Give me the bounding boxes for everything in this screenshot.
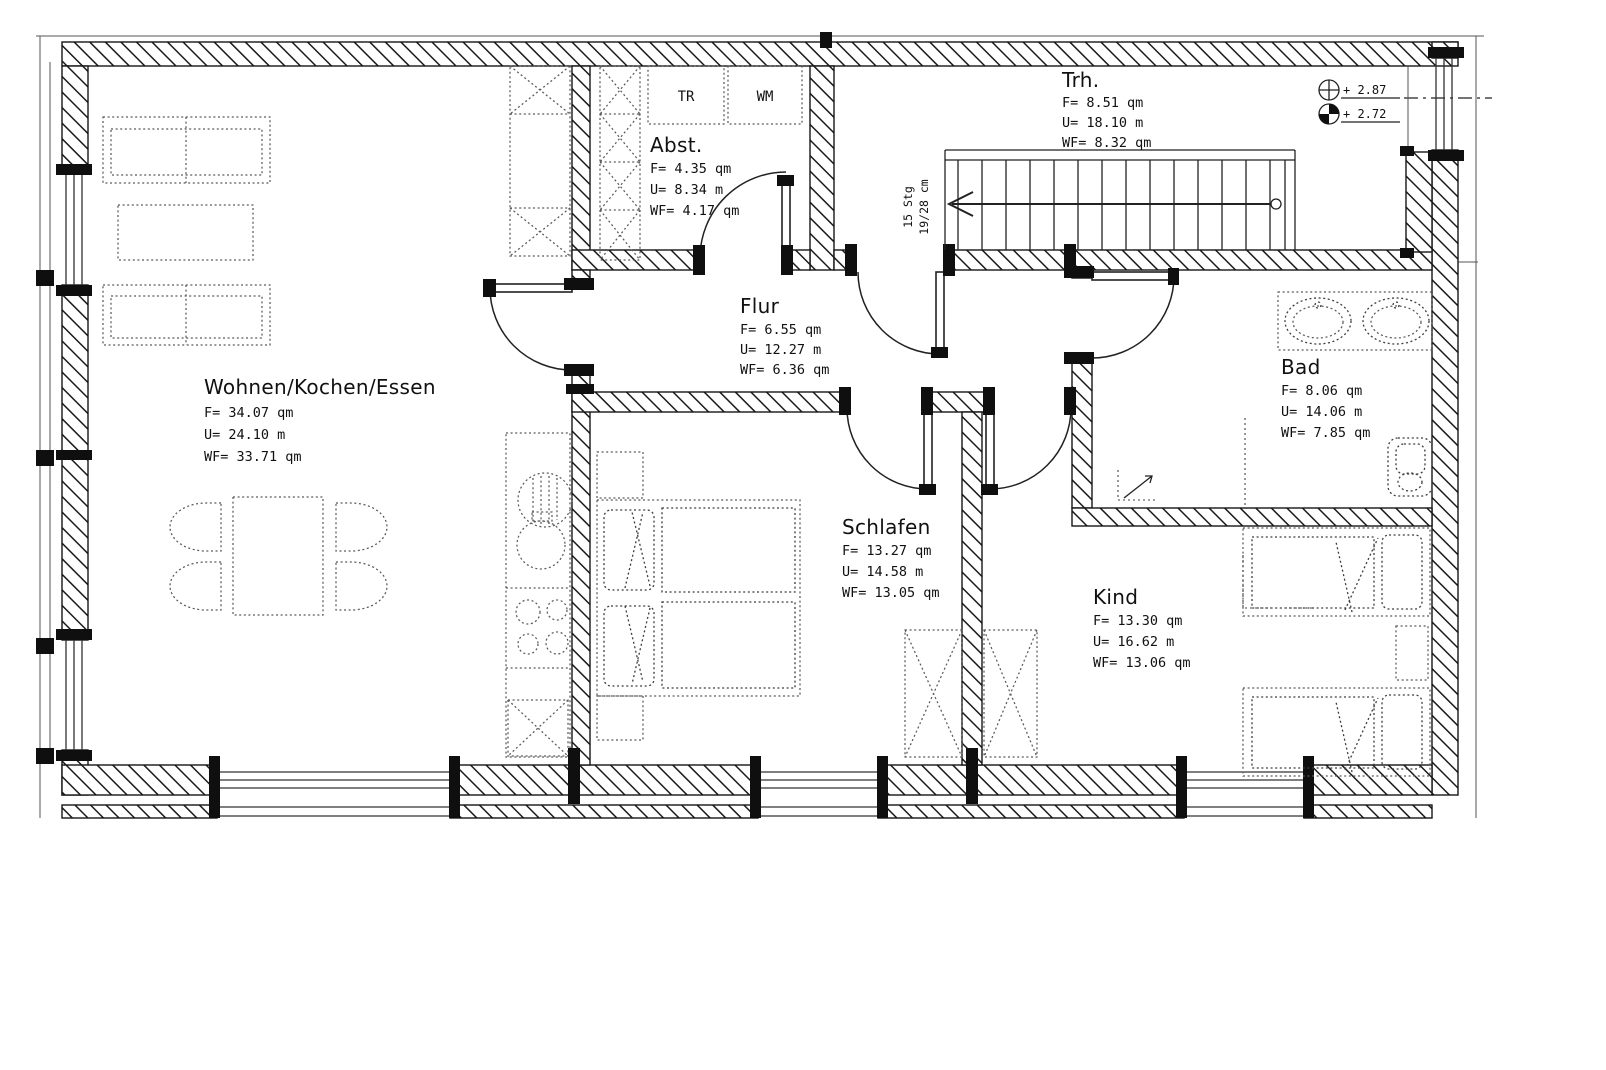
level-lower-label: + 2.72	[1343, 107, 1386, 121]
floor-plan-page: 15 Stg 19/28 cm TR WM	[0, 0, 1606, 1070]
window-bottom-middle	[750, 756, 888, 818]
room-area: F= 8.06 qm	[1281, 383, 1362, 399]
room-living-area: WF= 7.85 qm	[1281, 425, 1370, 441]
roof-slope-line	[1243, 555, 1312, 608]
stair-walk-line-arrow	[949, 192, 1281, 216]
stair-rise-run-label: 19/28 cm	[917, 179, 931, 234]
room-living-area: WF= 8.32 qm	[1062, 135, 1151, 151]
kids-room-furniture	[1243, 528, 1430, 776]
room-area: F= 13.27 qm	[842, 543, 931, 559]
bathroom-fixtures	[1118, 292, 1432, 506]
window-bottom-right	[1176, 756, 1314, 818]
room-perimeter: U= 14.58 m	[842, 564, 923, 580]
room-perimeter: U= 16.62 m	[1093, 634, 1174, 650]
room-title: Trh.	[1061, 68, 1099, 92]
room-label-hall: Flur F= 6.55 qm U= 12.27 m WF= 6.36 qm	[740, 294, 829, 378]
single-bed-top	[1243, 528, 1430, 616]
room-living-area: WF= 13.05 qm	[842, 585, 940, 601]
room-area: F= 34.07 qm	[204, 405, 293, 421]
coffee-table	[118, 205, 253, 260]
room-living-area: WF= 13.06 qm	[1093, 655, 1191, 671]
room-title: Schlafen	[842, 515, 931, 539]
double-bed	[597, 500, 800, 696]
wardrobe-storage	[600, 66, 640, 260]
room-perimeter: U= 18.10 m	[1062, 115, 1143, 131]
dryer-label: TR	[678, 89, 695, 105]
stair-annotation: 15 Stg 19/28 cm	[901, 179, 931, 234]
room-title: Kind	[1093, 585, 1138, 609]
toilet	[1388, 438, 1432, 496]
level-marker-upper: + 2.87	[1319, 80, 1400, 100]
room-title: Bad	[1281, 355, 1321, 379]
washing-machine-box: WM	[728, 66, 802, 124]
single-bed-bottom	[1243, 688, 1430, 776]
room-area: F= 13.30 qm	[1093, 613, 1182, 629]
nightstand-kids	[1396, 626, 1428, 680]
sofa-top	[103, 117, 270, 183]
room-area: F= 6.55 qm	[740, 322, 821, 338]
room-perimeter: U= 14.06 m	[1281, 404, 1362, 420]
room-label-kids: Kind F= 13.30 qm U= 16.62 m WF= 13.06 qm	[1093, 585, 1191, 671]
door-entrance	[845, 244, 955, 358]
room-label-storage: Abst. F= 4.35 qm U= 8.34 m WF= 4.17 qm	[650, 133, 739, 219]
level-upper-label: + 2.87	[1343, 83, 1386, 97]
wardrobe-kids	[984, 630, 1037, 757]
washer-label: WM	[757, 89, 774, 105]
double-washbasin	[1278, 292, 1432, 350]
door-living-to-hall	[483, 278, 594, 376]
door-bedroom	[839, 387, 936, 495]
room-title: Flur	[740, 294, 780, 318]
floor-plan-drawing: 15 Stg 19/28 cm TR WM	[0, 0, 1606, 1070]
window-bottom-left	[209, 756, 460, 818]
kitchen-sink	[517, 473, 572, 569]
room-perimeter: U= 8.34 m	[650, 182, 723, 198]
room-living-area: WF= 4.17 qm	[650, 203, 739, 219]
room-perimeter: U= 12.27 m	[740, 342, 821, 358]
dining-set	[170, 497, 387, 615]
kitchen-stove	[516, 600, 568, 654]
room-perimeter: U= 24.10 m	[204, 427, 285, 443]
room-area: F= 8.51 qm	[1062, 95, 1143, 111]
window-left-upper	[56, 164, 92, 296]
level-markers: + 2.87 + 2.72	[1319, 80, 1400, 124]
nightstand-bottom	[597, 696, 643, 740]
wardrobe-bedroom	[905, 630, 962, 757]
nightstand-top	[597, 452, 643, 498]
kitchen-counter	[506, 433, 572, 757]
room-area: F= 4.35 qm	[650, 161, 731, 177]
dryer-box: TR	[648, 66, 724, 124]
window-left-lower	[56, 629, 92, 761]
room-living-area: WF= 6.36 qm	[740, 362, 829, 378]
room-label-bedroom: Schlafen F= 13.27 qm U= 14.58 m WF= 13.0…	[842, 515, 940, 601]
bedroom-furniture	[597, 452, 800, 740]
room-living-area: WF= 33.71 qm	[204, 449, 302, 465]
room-label-bath: Bad F= 8.06 qm U= 14.06 m WF= 7.85 qm	[1281, 355, 1370, 441]
shower-drain-symbol	[1118, 470, 1158, 500]
door-kids-room	[981, 387, 1076, 495]
kitchen-base-cabinet	[508, 700, 568, 756]
stair-steps-label: 15 Stg	[901, 186, 915, 228]
room-label-living: Wohnen/Kochen/Essen F= 34.07 qm U= 24.10…	[204, 375, 436, 465]
level-marker-lower: + 2.72	[1319, 104, 1400, 124]
sofa-bottom	[103, 285, 270, 345]
staircase: 15 Stg 19/28 cm	[901, 150, 1295, 250]
room-title: Abst.	[650, 133, 703, 157]
room-label-stairwell: Trh. F= 8.51 qm U= 18.10 m WF= 8.32 qm	[1061, 68, 1151, 151]
room-title: Wohnen/Kochen/Essen	[204, 375, 436, 399]
wardrobe-living	[510, 66, 570, 256]
